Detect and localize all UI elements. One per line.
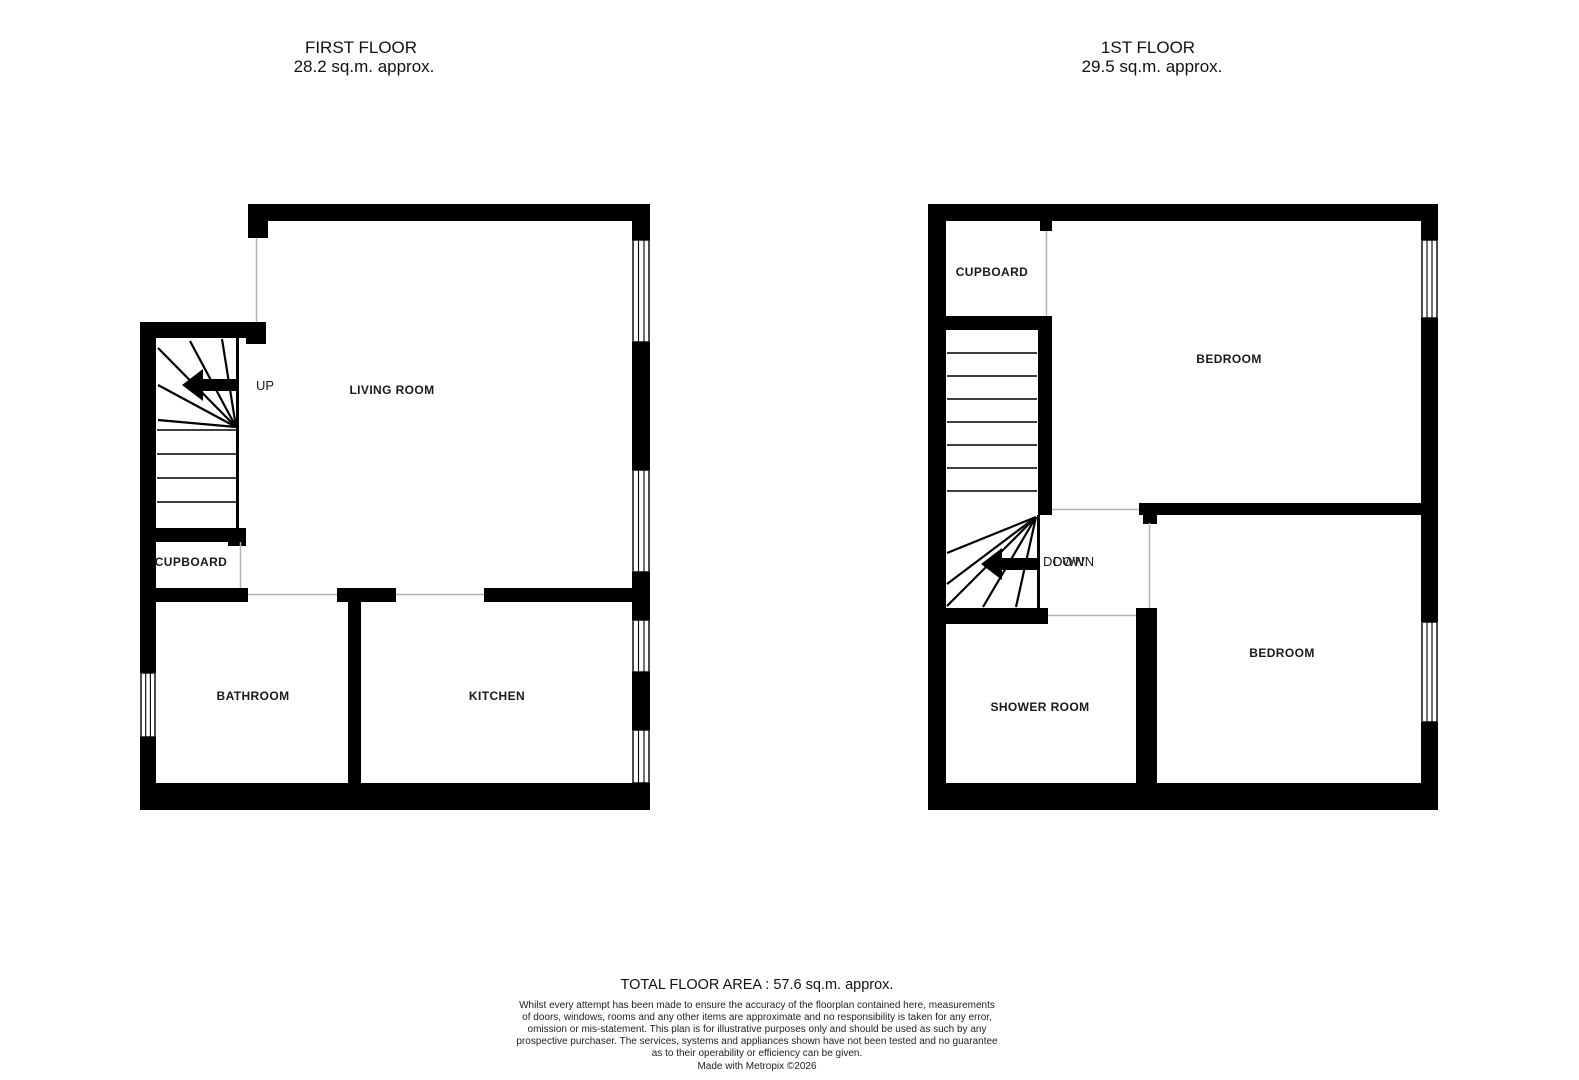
room-label-kitchen: KITCHEN — [469, 689, 525, 703]
room-label-bathroom: BATHROOM — [217, 689, 290, 703]
total-floor-area: TOTAL FLOOR AREA : 57.6 sq.m. approx. — [621, 977, 894, 993]
ff-staircase: UP — [157, 339, 274, 502]
window — [1422, 240, 1437, 318]
window — [633, 470, 649, 572]
room-label-cupboard-ff: CUPBOARD — [155, 555, 228, 569]
room-label-living-room: LIVING ROOM — [349, 383, 434, 397]
disclaimer-line: prospective purchaser. The services, sys… — [516, 1036, 998, 1047]
disclaimer-line: as to their operability or efficiency ca… — [652, 1048, 863, 1059]
stairs-up-label: UP — [256, 378, 274, 393]
disclaimer-line: Whilst every attempt has been made to en… — [519, 1000, 995, 1011]
ff-walls — [140, 204, 650, 810]
credit-line: Made with Metropix ©2026 — [697, 1061, 817, 1072]
window — [633, 730, 649, 783]
sf-walls — [928, 204, 1438, 810]
window — [633, 620, 649, 672]
footer: TOTAL FLOOR AREA : 57.6 sq.m. approx. Wh… — [516, 977, 998, 1072]
room-label-bedroom-front: BEDROOM — [1196, 352, 1261, 366]
first-floor-title: FIRST FLOOR — [305, 38, 417, 57]
floorplan-page: FIRST FLOOR 28.2 sq.m. approx. — [0, 0, 1579, 1080]
floorplan-canvas: FIRST FLOOR 28.2 sq.m. approx. — [0, 0, 1579, 1080]
stairs-down-label: DOWN — [1053, 554, 1094, 569]
up-arrow-icon — [182, 369, 237, 401]
second-floor-area: 29.5 sq.m. approx. — [1082, 57, 1223, 76]
sf-staircase: DOWN DOWN — [947, 353, 1094, 607]
disclaimer-line: of doors, windows, rooms and any other i… — [522, 1012, 992, 1023]
second-floor-title: 1ST FLOOR — [1101, 38, 1195, 57]
room-label-cupboard-sf: CUPBOARD — [956, 265, 1029, 279]
window — [633, 240, 649, 342]
second-floor-plan: 1ST FLOOR 29.5 sq.m. approx. — [928, 38, 1438, 810]
ff-opening-lines — [241, 238, 485, 595]
first-floor-plan: FIRST FLOOR 28.2 sq.m. approx. — [140, 38, 650, 810]
window — [141, 673, 155, 737]
disclaimer-line: omission or mis-statement. This plan is … — [528, 1024, 987, 1035]
window — [1422, 622, 1437, 722]
room-label-bedroom-back: BEDROOM — [1249, 646, 1314, 660]
first-floor-area: 28.2 sq.m. approx. — [294, 57, 435, 76]
room-label-shower-room: SHOWER ROOM — [990, 700, 1089, 714]
